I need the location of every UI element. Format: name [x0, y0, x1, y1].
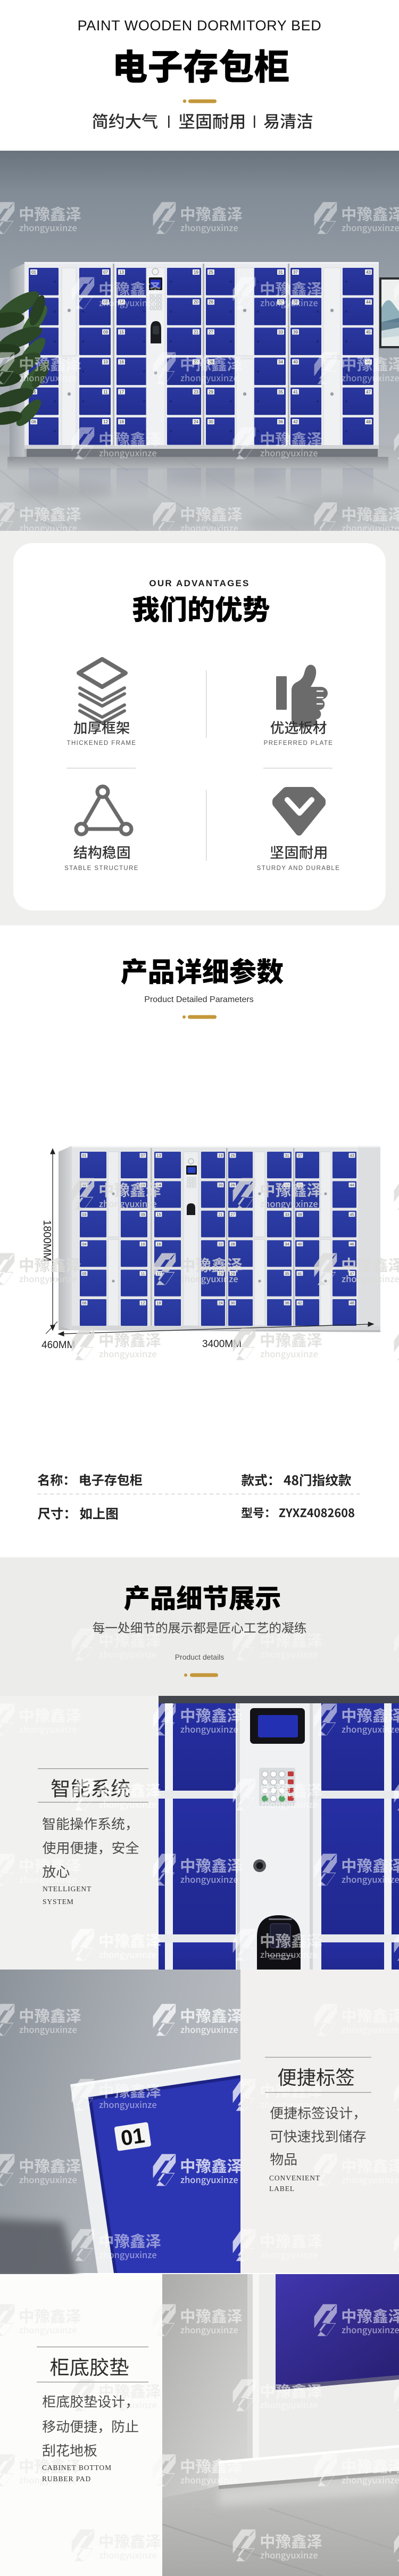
svg-text:44: 44: [366, 300, 371, 305]
svg-text:21: 21: [194, 330, 198, 334]
svg-text:09: 09: [103, 330, 108, 334]
svg-text:34: 34: [285, 1242, 289, 1246]
svg-text:15: 15: [156, 1212, 161, 1217]
svg-text:37: 37: [293, 270, 298, 275]
svg-text:07: 07: [103, 270, 108, 275]
svg-text:41: 41: [293, 390, 298, 395]
svg-text:47: 47: [350, 1271, 354, 1276]
svg-text:36: 36: [285, 1301, 289, 1306]
svg-text:16: 16: [156, 1242, 161, 1246]
svg-text:19: 19: [218, 1153, 222, 1158]
svg-text:01: 01: [31, 270, 36, 275]
svg-text:19: 19: [194, 270, 198, 275]
svg-text:42: 42: [297, 1301, 302, 1306]
svg-text:17: 17: [156, 1271, 161, 1276]
svg-text:RUBBER PAD: RUBBER PAD: [42, 2475, 91, 2483]
svg-text:33: 33: [285, 1212, 289, 1217]
svg-text:LABEL: LABEL: [269, 2185, 295, 2193]
svg-text:25: 25: [209, 270, 213, 275]
svg-text:43: 43: [366, 270, 371, 275]
svg-text:36: 36: [278, 420, 283, 424]
svg-text:01: 01: [119, 2124, 146, 2151]
svg-text:15: 15: [119, 330, 124, 334]
svg-text:04: 04: [82, 1242, 86, 1246]
svg-text:40: 40: [293, 360, 298, 365]
svg-text:34: 34: [278, 360, 283, 365]
svg-text:45: 45: [366, 330, 371, 334]
svg-text:23: 23: [194, 390, 198, 395]
svg-text:27: 27: [209, 330, 213, 334]
svg-text:10: 10: [140, 1242, 145, 1246]
svg-text:47: 47: [366, 390, 371, 395]
svg-text:460MM: 460MM: [41, 1340, 75, 1351]
svg-text:29: 29: [209, 390, 213, 395]
svg-text:24: 24: [194, 420, 198, 424]
svg-text:46: 46: [350, 1242, 354, 1246]
svg-text:CABINET BOTTOM: CABINET BOTTOM: [42, 2464, 112, 2472]
svg-text:06: 06: [82, 1301, 86, 1306]
svg-text:11: 11: [141, 1271, 145, 1276]
svg-text:35: 35: [285, 1271, 289, 1276]
svg-text:Product details: Product details: [175, 1653, 225, 1661]
svg-text:22: 22: [218, 1242, 222, 1246]
svg-text:26: 26: [230, 1183, 235, 1187]
svg-text:13: 13: [119, 270, 124, 275]
svg-text:STURDY AND DURABLE: STURDY AND DURABLE: [257, 865, 340, 872]
svg-text:18: 18: [156, 1301, 161, 1306]
svg-text:12: 12: [103, 420, 108, 424]
svg-text:06: 06: [31, 420, 36, 424]
svg-text:OUR ADVANTAGES: OUR ADVANTAGES: [149, 578, 250, 588]
svg-text:21: 21: [218, 1212, 222, 1217]
svg-text:05: 05: [82, 1271, 86, 1276]
svg-text:03: 03: [82, 1212, 86, 1217]
svg-text:41: 41: [297, 1271, 302, 1276]
svg-text:01: 01: [82, 1153, 86, 1158]
svg-text:40: 40: [297, 1242, 302, 1246]
svg-text:16: 16: [119, 360, 124, 365]
svg-text:30: 30: [209, 420, 213, 424]
svg-text:NTELLIGENT: NTELLIGENT: [43, 1885, 92, 1893]
svg-text:39: 39: [293, 330, 298, 334]
svg-text:31: 31: [278, 270, 283, 275]
svg-text:20: 20: [218, 1183, 222, 1187]
svg-text:PREFERRED PLATE: PREFERRED PLATE: [264, 740, 334, 746]
svg-text:29: 29: [230, 1271, 235, 1276]
svg-text:20: 20: [194, 300, 198, 305]
svg-text:THICKENED FRAME: THICKENED FRAME: [67, 740, 137, 746]
svg-text:24: 24: [218, 1301, 222, 1306]
svg-text:42: 42: [293, 420, 298, 424]
svg-text:SYSTEM: SYSTEM: [43, 1898, 74, 1906]
svg-text:26: 26: [209, 300, 213, 305]
svg-text:18: 18: [119, 420, 124, 424]
svg-text:43: 43: [350, 1153, 354, 1158]
svg-text:STABLE STRUCTURE: STABLE STRUCTURE: [64, 865, 139, 872]
svg-text:35: 35: [278, 390, 283, 395]
svg-text:10: 10: [103, 360, 108, 365]
svg-text:48: 48: [366, 420, 371, 424]
svg-text:31: 31: [285, 1153, 289, 1158]
svg-text:39: 39: [297, 1212, 302, 1217]
svg-text:CONVENIENT: CONVENIENT: [269, 2174, 320, 2182]
svg-text:17: 17: [119, 390, 124, 395]
svg-text:11: 11: [103, 390, 108, 395]
svg-text:30: 30: [230, 1301, 235, 1306]
svg-text:28: 28: [230, 1242, 235, 1246]
svg-text:44: 44: [350, 1183, 354, 1187]
svg-text:07: 07: [140, 1153, 145, 1158]
svg-text:25: 25: [230, 1153, 235, 1158]
svg-text:27: 27: [230, 1212, 235, 1217]
svg-text:Product Detailed Parameters: Product Detailed Parameters: [144, 995, 253, 1004]
svg-text:13: 13: [156, 1153, 161, 1158]
svg-text:09: 09: [140, 1212, 145, 1217]
svg-text:37: 37: [297, 1153, 302, 1158]
svg-text:12: 12: [140, 1301, 145, 1306]
svg-text:1800MM: 1800MM: [41, 1220, 53, 1261]
svg-text:45: 45: [350, 1212, 354, 1217]
svg-text:33: 33: [278, 330, 283, 334]
svg-text:48: 48: [350, 1301, 354, 1306]
